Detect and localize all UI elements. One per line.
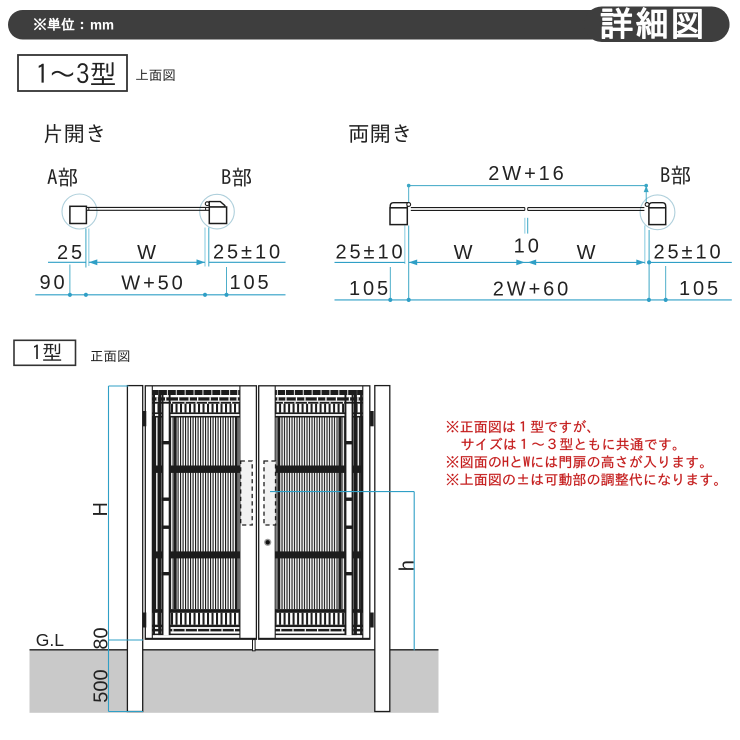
svg-text:500: 500 [91,669,113,702]
svg-text:W+50: W+50 [121,272,185,294]
svg-text:mm: mm [90,18,114,33]
svg-text:h: h [397,560,419,571]
svg-text:80: 80 [91,627,113,649]
svg-text:25: 25 [57,242,85,264]
svg-text:105: 105 [679,278,721,300]
svg-text:105: 105 [349,278,391,300]
svg-text:2W+16: 2W+16 [488,163,566,185]
svg-text:H: H [90,502,112,516]
svg-text:2W+60: 2W+60 [493,278,571,300]
svg-text:10: 10 [514,236,542,258]
svg-text:W: W [454,242,476,264]
svg-text:25±10: 25±10 [654,241,724,263]
svg-text:G.L: G.L [36,630,64,650]
svg-text:W: W [577,242,599,264]
svg-text:25±10: 25±10 [336,241,406,263]
svg-text:90: 90 [39,272,67,294]
svg-text:W: W [137,242,159,264]
svg-text:25±10: 25±10 [213,241,283,263]
svg-text:105: 105 [229,272,271,294]
